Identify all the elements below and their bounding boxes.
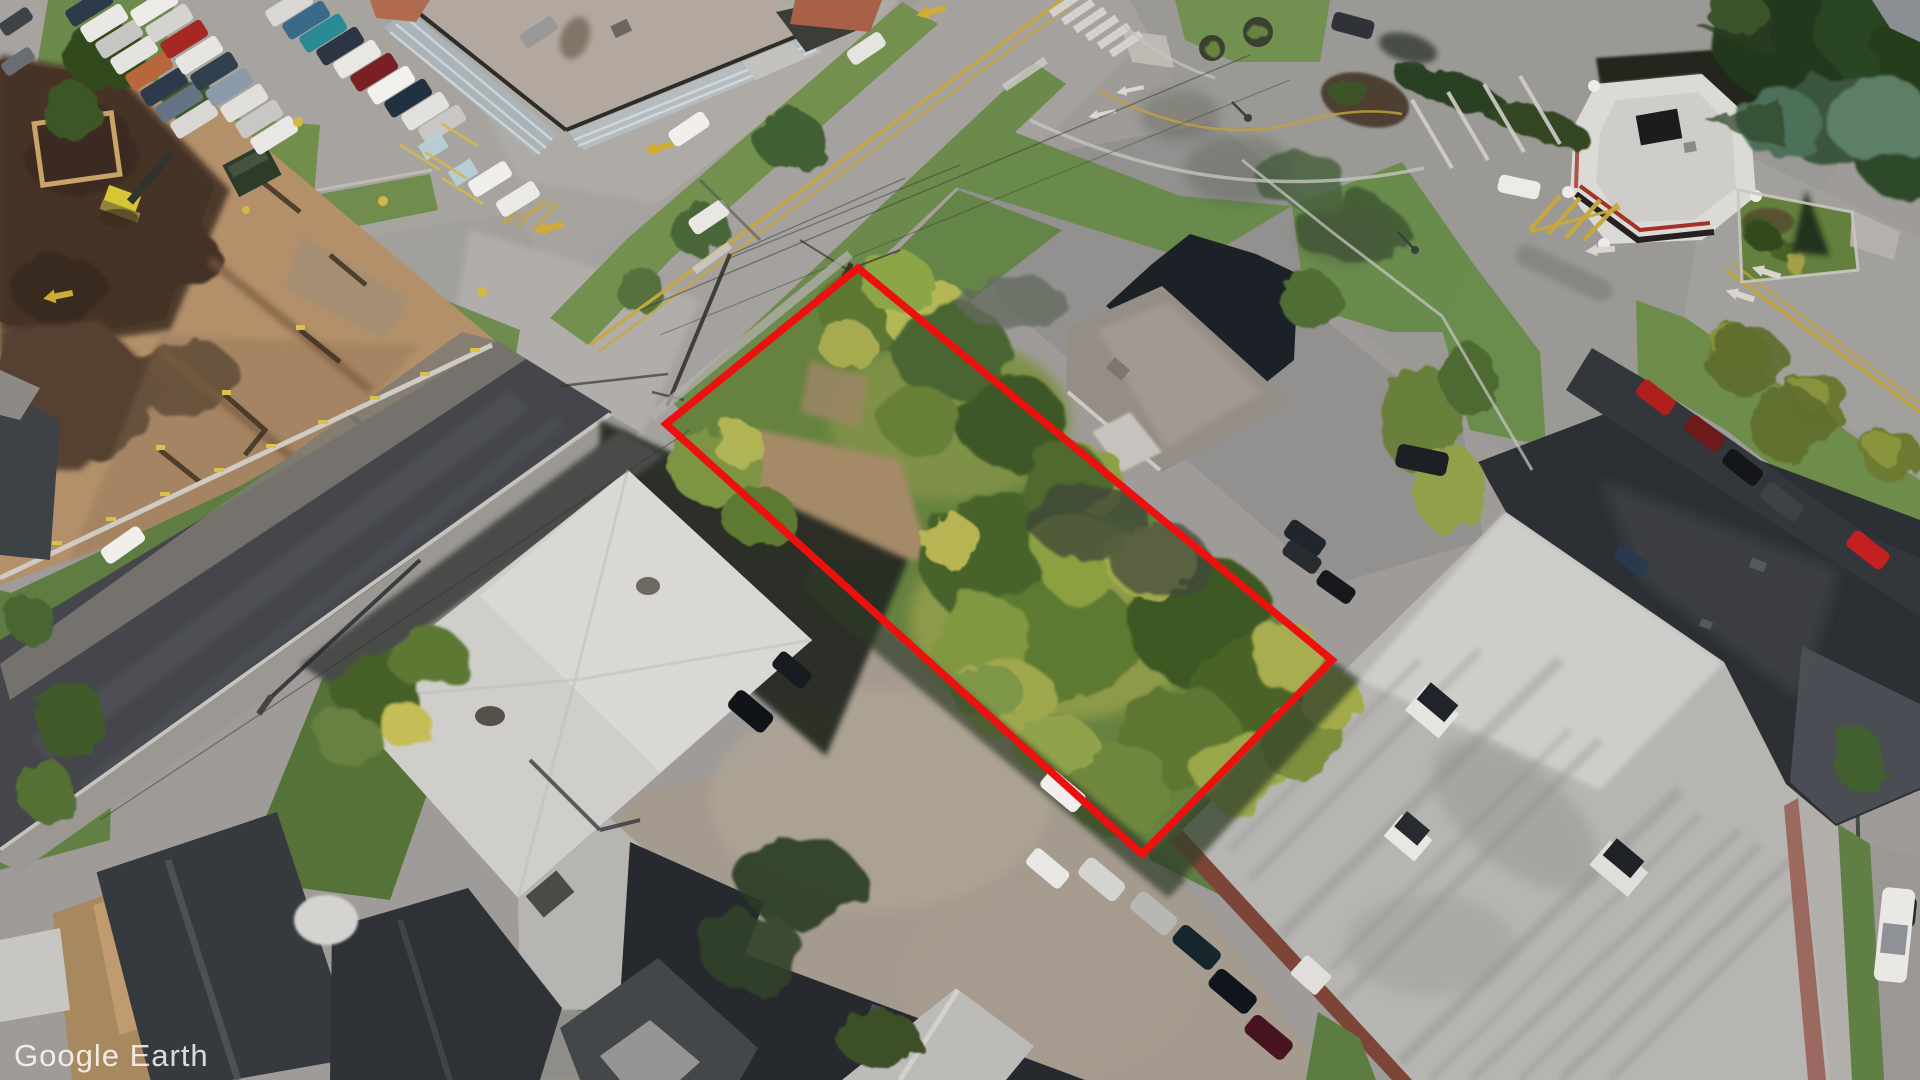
svg-text:Google Earth: Google Earth xyxy=(14,1038,209,1073)
